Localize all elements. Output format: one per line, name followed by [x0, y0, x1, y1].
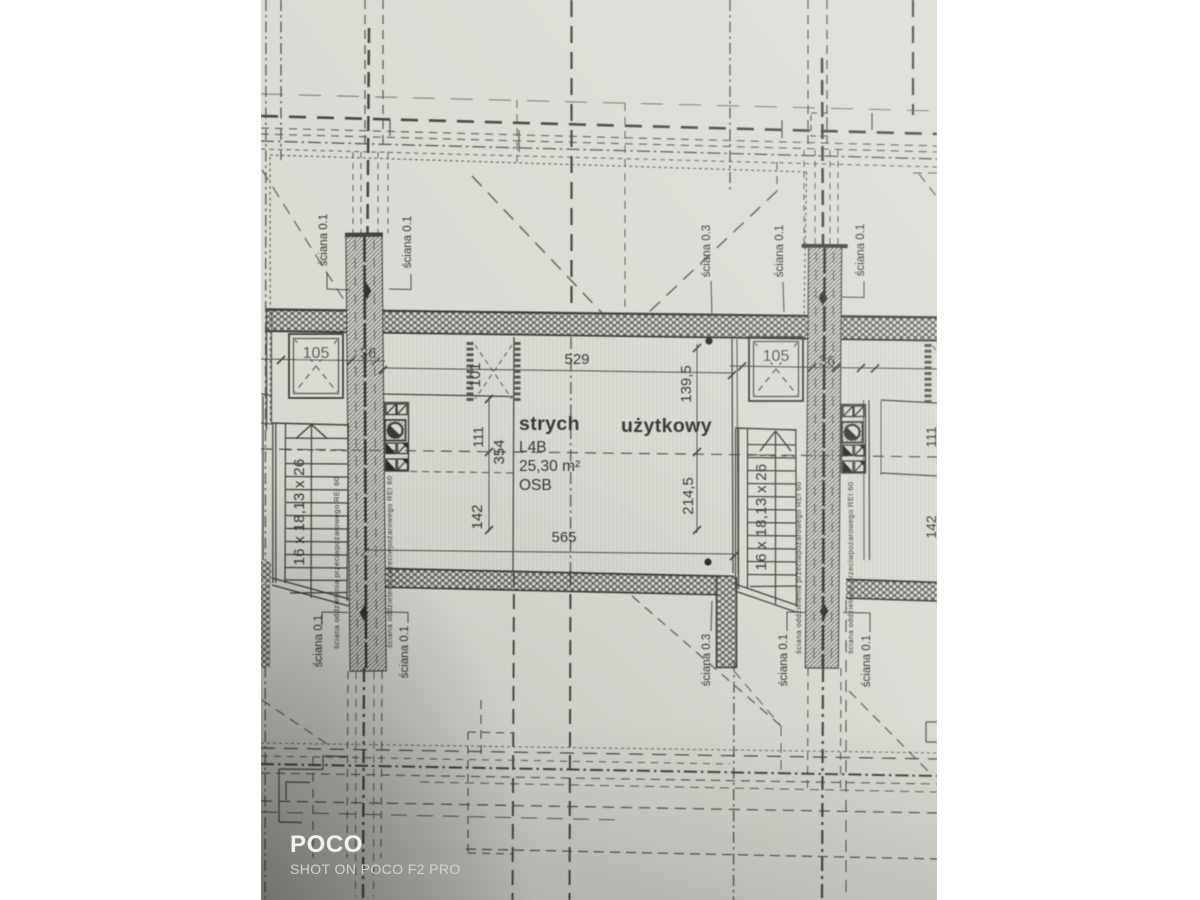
svg-text:POCO: POCO	[290, 831, 363, 858]
svg-text:SHOT ON POCO F2 PRO: SHOT ON POCO F2 PRO	[290, 861, 461, 877]
